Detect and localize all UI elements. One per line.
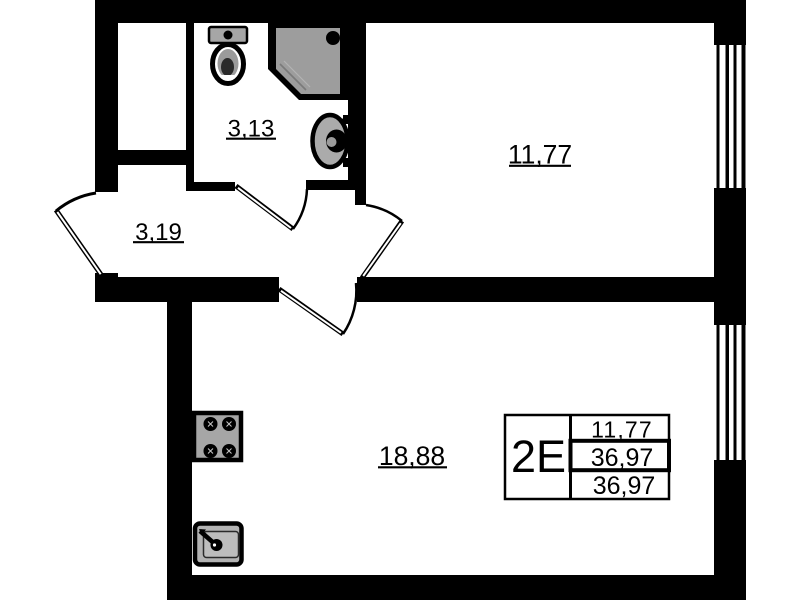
svg-text:2E: 2E	[511, 431, 566, 482]
svg-text:36,97: 36,97	[591, 444, 654, 472]
svg-text:11,77: 11,77	[591, 417, 653, 443]
svg-text:36,97: 36,97	[593, 472, 656, 500]
